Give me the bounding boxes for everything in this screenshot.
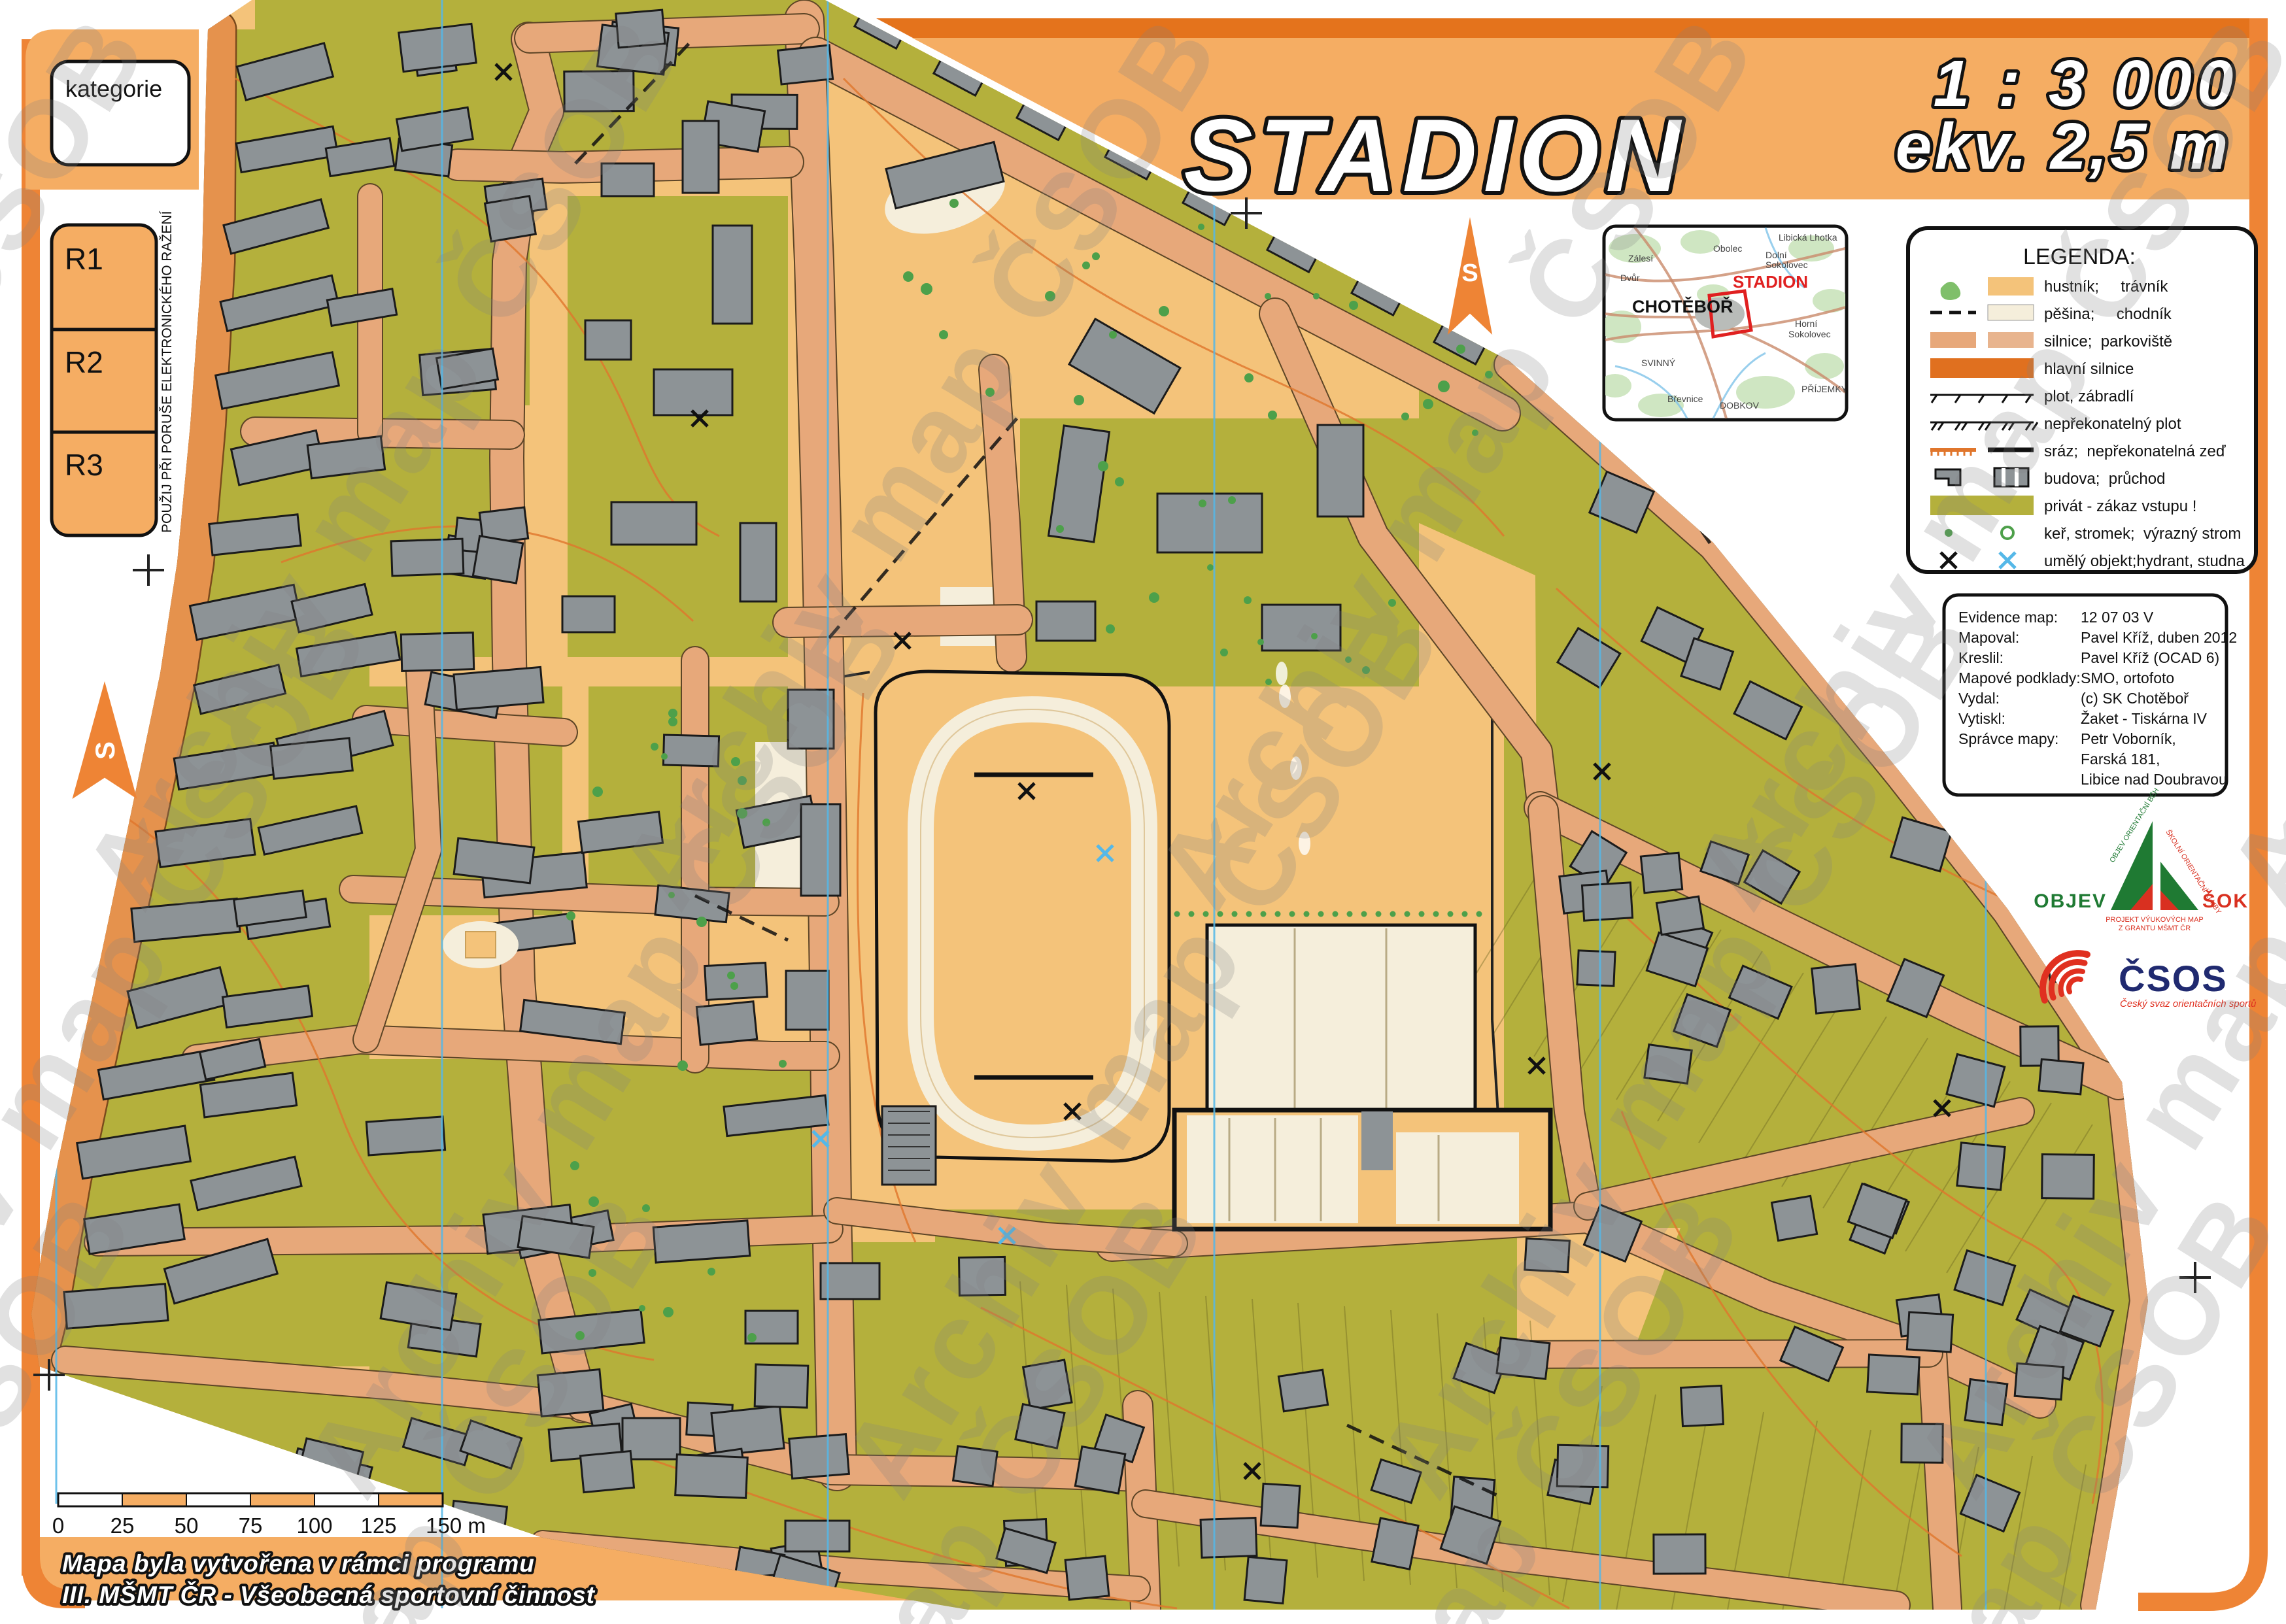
svg-text:Libická Lhotka: Libická Lhotka xyxy=(1779,232,1837,243)
svg-text:12 07 03 V: 12 07 03 V xyxy=(2081,609,2154,626)
svg-text:Břevnice: Břevnice xyxy=(1667,394,1703,404)
svg-text:PROJEKT VÝUKOVÝCH MAP: PROJEKT VÝUKOVÝCH MAP xyxy=(2106,915,2204,924)
svg-text:PŘÍJEMKY: PŘÍJEMKY xyxy=(1801,384,1848,394)
svg-text:Sokolovec: Sokolovec xyxy=(1788,329,1831,339)
svg-text:0: 0 xyxy=(52,1514,64,1538)
svg-text:Petr Voborník,: Petr Voborník, xyxy=(2081,730,2176,747)
svg-text:R1: R1 xyxy=(65,242,103,276)
svg-text:Z GRANTU MŠMT ČR: Z GRANTU MŠMT ČR xyxy=(2119,924,2191,932)
svg-text:OBJEV: OBJEV xyxy=(2034,890,2107,912)
svg-text:75: 75 xyxy=(239,1514,263,1538)
svg-text:R3: R3 xyxy=(65,448,103,482)
svg-text:S: S xyxy=(90,741,120,760)
svg-text:Sokolovec: Sokolovec xyxy=(1766,260,1808,270)
svg-text:Žaket - Tiskárna IV: Žaket - Tiskárna IV xyxy=(2081,710,2208,727)
svg-text:privát - zákaz vstupu !: privát - zákaz vstupu ! xyxy=(2044,498,2196,515)
svg-text:POUŽIJ PŘI PORUŠE ELEKTRONICKÉ: POUŽIJ PŘI PORUŠE ELEKTRONICKÉHO RAŽENÍ xyxy=(160,211,175,533)
svg-text:Obolec: Obolec xyxy=(1713,243,1742,254)
svg-text:Farská 181,: Farská 181, xyxy=(2081,751,2160,768)
svg-text:DOBKOV: DOBKOV xyxy=(1720,400,1760,411)
svg-text:25: 25 xyxy=(111,1514,135,1538)
svg-text:Horní: Horní xyxy=(1795,318,1817,329)
svg-text:SMO, ortofoto: SMO, ortofoto xyxy=(2081,669,2174,686)
svg-text:CHOTĚBOŘ: CHOTĚBOŘ xyxy=(1632,296,1733,316)
svg-text:SVINNÝ: SVINNÝ xyxy=(1641,358,1676,368)
svg-text:Libice nad Doubravou: Libice nad Doubravou xyxy=(2081,771,2227,788)
svg-text:Evidence map:: Evidence map: xyxy=(1958,609,2058,626)
svg-text:Pavel Kříž, duben 2012: Pavel Kříž, duben 2012 xyxy=(2081,629,2237,646)
svg-text:Správce mapy:: Správce mapy: xyxy=(1958,730,2058,747)
svg-text:S: S xyxy=(1461,260,1478,287)
svg-text:Pavel Kříž (OCAD 6): Pavel Kříž (OCAD 6) xyxy=(2081,649,2219,666)
svg-text:(c) SK Chotěboř: (c) SK Chotěboř xyxy=(2081,690,2189,707)
svg-text:STADION: STADION xyxy=(1733,272,1808,292)
svg-text:Dolní: Dolní xyxy=(1766,250,1787,260)
svg-text:100: 100 xyxy=(296,1514,332,1538)
svg-text:50: 50 xyxy=(175,1514,199,1538)
svg-text:R2: R2 xyxy=(65,345,103,379)
svg-text:keř, stromek; výrazný strom: keř, stromek; výrazný strom xyxy=(2044,525,2241,543)
svg-text:umělý objekt;hydrant, studna: umělý objekt;hydrant, studna xyxy=(2044,552,2245,570)
svg-text:Vytiskl:: Vytiskl: xyxy=(1958,710,2005,727)
svg-text:budova; průchod: budova; průchod xyxy=(2044,470,2165,488)
